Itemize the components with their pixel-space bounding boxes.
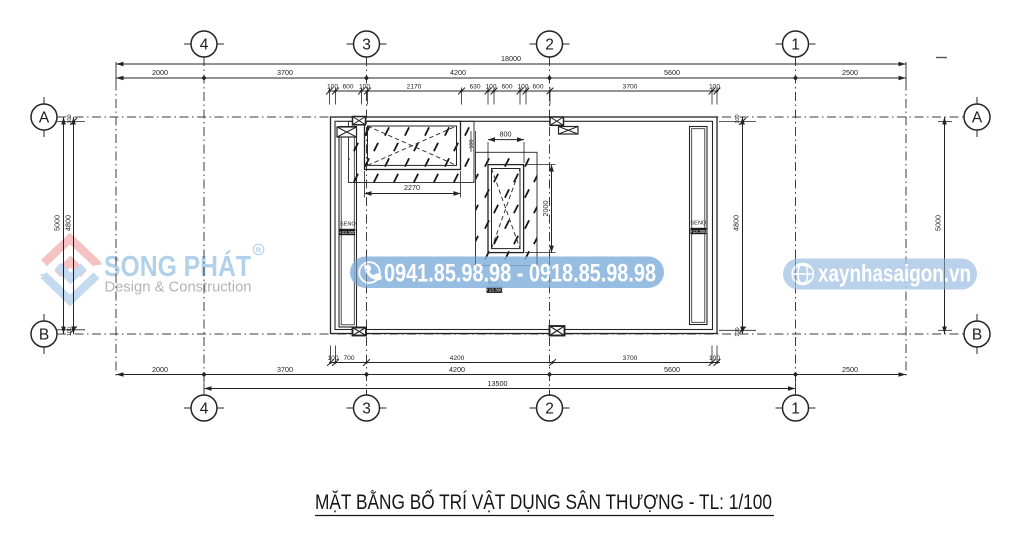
svg-text:3700: 3700 (277, 68, 293, 77)
svg-text:100: 100 (67, 114, 73, 123)
svg-text:4: 4 (200, 37, 209, 54)
svg-text:5600: 5600 (664, 365, 680, 374)
svg-text:B: B (39, 327, 49, 344)
svg-text:1: 1 (791, 401, 800, 418)
svg-text:xaynhasaigon.vn: xaynhasaigon.vn (818, 261, 971, 288)
svg-text:3700: 3700 (277, 365, 293, 374)
svg-text:100: 100 (359, 83, 370, 90)
svg-text:100: 100 (709, 83, 720, 90)
svg-text:100: 100 (517, 83, 528, 90)
svg-text:100: 100 (469, 139, 475, 148)
svg-text:3: 3 (362, 401, 371, 418)
svg-text:100: 100 (709, 355, 720, 362)
svg-text:2000: 2000 (152, 365, 168, 374)
svg-text:4200: 4200 (450, 68, 466, 77)
svg-text:2000: 2000 (152, 68, 168, 77)
svg-text:600: 600 (532, 83, 543, 90)
svg-text:3: 3 (362, 37, 371, 54)
svg-text:100: 100 (67, 327, 73, 336)
svg-text:+13.300: +13.300 (339, 230, 356, 235)
svg-text:SENO: SENO (690, 221, 707, 227)
svg-text:5000: 5000 (934, 215, 943, 231)
svg-text:4200: 4200 (449, 365, 465, 374)
svg-text:630: 630 (469, 83, 480, 90)
svg-text:100: 100 (485, 83, 496, 90)
svg-text:B: B (972, 327, 982, 344)
svg-text:13500: 13500 (488, 379, 508, 388)
svg-text:2000: 2000 (541, 201, 550, 217)
svg-text:2: 2 (545, 401, 554, 418)
svg-text:SENO: SENO (340, 222, 357, 228)
svg-text:2170: 2170 (407, 83, 422, 90)
svg-text:700: 700 (343, 355, 354, 362)
svg-text:100: 100 (735, 327, 741, 336)
svg-text:600: 600 (342, 83, 353, 90)
svg-text:5600: 5600 (664, 68, 680, 77)
svg-text:800: 800 (500, 130, 512, 139)
svg-text:2500: 2500 (842, 68, 858, 77)
svg-text:600: 600 (501, 83, 512, 90)
svg-text:3700: 3700 (623, 83, 638, 90)
svg-text:Design & Construction: Design & Construction (105, 280, 252, 296)
svg-text:2500: 2500 (842, 365, 858, 374)
svg-text:+13.300: +13.300 (486, 288, 503, 293)
svg-text:SONG PHÁT: SONG PHÁT (104, 251, 252, 283)
svg-text:2: 2 (545, 37, 554, 54)
svg-text:4800: 4800 (64, 215, 73, 231)
svg-text:0941.85.98.98 - 0918.85.98.98: 0941.85.98.98 - 0918.85.98.98 (384, 260, 656, 288)
svg-text:MẶT BẰNG BỐ TRÍ VẬT DỤNG SÂN T: MẶT BẰNG BỐ TRÍ VẬT DỤNG SÂN THƯỢNG - TL… (315, 490, 772, 514)
svg-text:2270: 2270 (404, 183, 420, 192)
svg-text:A: A (972, 110, 983, 127)
svg-text:R: R (256, 245, 262, 254)
svg-text:1: 1 (791, 37, 800, 54)
svg-text:18000: 18000 (501, 54, 521, 63)
svg-text:4200: 4200 (450, 355, 465, 362)
svg-text:+13.300: +13.300 (690, 229, 707, 234)
svg-text:A: A (39, 110, 50, 127)
svg-text:100: 100 (735, 114, 741, 123)
svg-text:100: 100 (327, 355, 338, 362)
svg-text:3700: 3700 (623, 355, 638, 362)
svg-text:5000: 5000 (53, 215, 62, 231)
svg-text:4: 4 (200, 401, 209, 418)
svg-text:4800: 4800 (732, 215, 741, 231)
svg-text:100: 100 (327, 83, 338, 90)
